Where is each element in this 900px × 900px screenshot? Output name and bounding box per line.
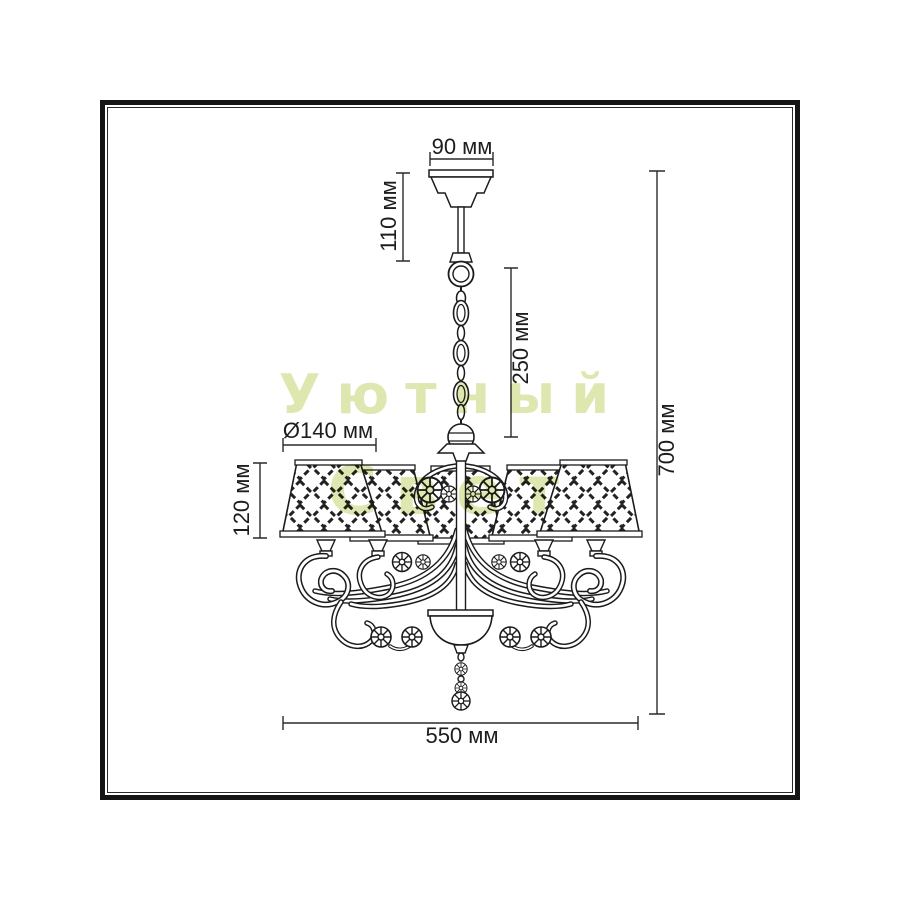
crystal-drop [455,663,467,675]
crystal-rosette [416,555,430,569]
hanging-ring [449,262,474,287]
crystal-drop [452,692,470,710]
finial-drops [452,653,470,710]
dim-chain-drop-label: 250 мм [508,311,533,384]
chain [454,286,469,430]
crystal-rosette [393,553,412,572]
crystal-rosette [418,478,443,503]
crystal-rosette [402,627,422,647]
chandelier-diagram: 90 мм 110 мм 250 мм 700 мм Ø140 мм 120 м… [0,0,900,900]
dim-total-width-label: 550 мм [425,723,498,748]
dim-shade-height-line [253,463,267,538]
dim-shade-diameter-label: Ø140 мм [283,418,373,443]
ceiling-canopy [429,170,493,287]
dim-shade-height-label: 120 мм [229,463,254,536]
hub [438,424,484,461]
crystal-rosette [441,486,457,502]
dim-canopy-width-label: 90 мм [432,134,493,159]
candle-scroll [299,556,349,605]
diagram-page: 90 мм 110 мм 250 мм 700 мм Ø140 мм 120 м… [0,0,900,900]
crystal-rosette [371,627,391,647]
dim-total-height-label: 700 мм [654,403,679,476]
center-column [457,450,466,612]
suspension-rod [458,207,464,253]
lower-scroll [334,602,422,649]
dim-top-drop-label: 110 мм [376,180,401,251]
bottom-bowl [428,610,493,653]
